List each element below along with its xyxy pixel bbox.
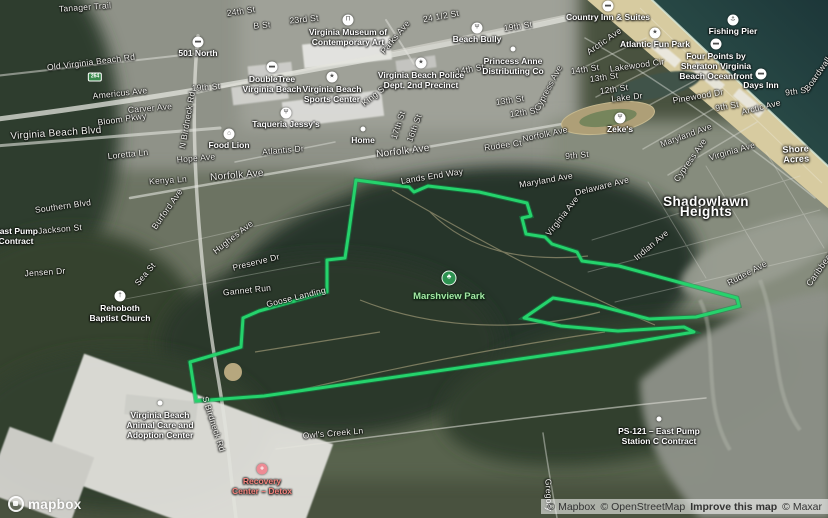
street-label: Parks Ave xyxy=(378,18,412,55)
street-label: Indian Ave xyxy=(632,228,671,263)
dot-icon xyxy=(158,400,163,405)
street-label: 19th St xyxy=(503,19,533,33)
poi-label: Beach Bully xyxy=(453,34,502,44)
highway-shield: 264 xyxy=(88,73,102,82)
street-label: Goose Landing xyxy=(265,285,327,309)
street-label: 24 1/2 St xyxy=(422,8,459,24)
museum-icon: Π xyxy=(343,15,354,26)
street-label: Norfolk Ave xyxy=(521,124,568,143)
dot-icon xyxy=(511,47,516,52)
street-label: Virginia Ave xyxy=(708,140,757,163)
attribution-mapbox-link[interactable]: © Mapbox xyxy=(547,501,595,513)
mapbox-wordmark: mapbox xyxy=(28,497,82,512)
street-label: Cypress Ave xyxy=(671,137,708,184)
park-icon: ♣ xyxy=(442,271,457,286)
poi-label: East Pump Contract xyxy=(0,226,38,246)
street-label: S Birdneck Rd xyxy=(200,395,227,453)
street-label: Lands End Way xyxy=(400,166,464,186)
street-label: Cypress Ave xyxy=(532,63,564,112)
poi-label: Recovery Center – Detox xyxy=(232,476,292,496)
street-label: Rudee Ct xyxy=(484,137,523,152)
attraction-icon: ★ xyxy=(650,27,661,38)
street-label: Virginia Ave xyxy=(543,194,580,238)
street-label: Jackson St xyxy=(38,222,83,236)
poi-label: Zeke's xyxy=(607,124,633,134)
street-label: Preserve Dr xyxy=(231,251,280,272)
poi-label: Fishing Pier xyxy=(709,26,758,36)
street-label: 13th St xyxy=(495,93,525,107)
street-label: 9th St xyxy=(565,149,590,161)
poi-label: DoubleTree Virginia Beach xyxy=(243,74,302,94)
street-label: Arctic Ave xyxy=(585,25,624,56)
street-label: Burford Ave xyxy=(149,187,184,231)
street-label: Old Virginia Beach Rd xyxy=(46,52,135,73)
lodging-icon: ▬ xyxy=(603,0,614,11)
street-label: King St xyxy=(359,82,388,108)
poi-label: 501 North xyxy=(178,48,217,58)
street-label: Delaware Ave xyxy=(574,174,630,197)
street-label: Boardwalk xyxy=(802,53,828,93)
lodging-icon: ▬ xyxy=(711,38,722,49)
street-label: B St xyxy=(253,19,271,30)
street-label: Lakewood Cir xyxy=(609,56,665,74)
lodging-icon: ▬ xyxy=(756,68,767,79)
attribution-maxar-link[interactable]: © Maxar xyxy=(782,501,822,513)
poi-label: Country Inn & Suites xyxy=(566,12,650,22)
medical-icon: + xyxy=(257,464,268,475)
poi-label: Virginia Beach Sports Center xyxy=(303,84,362,104)
street-label: 12th St xyxy=(509,105,539,119)
poi-label: Four Points by Sheraton Virginia Beach O… xyxy=(679,51,752,81)
poi-label: Days Inn xyxy=(743,80,778,90)
poi-label: Rehoboth Baptist Church xyxy=(90,303,151,323)
map-canvas[interactable]: Tanager Trail24th St23rd StB St24 1/2 St… xyxy=(0,0,828,518)
dot-icon xyxy=(657,417,662,422)
street-label: Carver Ave xyxy=(127,101,172,115)
place-label: Shadowlawn Heights xyxy=(645,197,767,217)
street-label: 16th St xyxy=(404,113,423,143)
attribution-bar: © Mapbox © OpenStreetMap Improve this ma… xyxy=(541,499,828,514)
street-label: Lake Dr xyxy=(611,90,643,103)
street-label: Norfolk Ave xyxy=(376,144,431,160)
restaurant-icon: Ψ xyxy=(615,112,626,123)
street-label: N Birdneck Rd xyxy=(177,91,197,150)
poi-label: Princess Anne Distributing Co xyxy=(482,56,543,76)
street-label: 23rd St xyxy=(289,13,319,26)
map-labels-layer: Tanager Trail24th St23rd StB St24 1/2 St… xyxy=(0,0,828,518)
grocery-icon: ⌂ xyxy=(224,128,235,139)
poi-label: Food Lion xyxy=(208,140,249,150)
street-label: Caribbean xyxy=(804,248,828,288)
mapbox-logo-icon xyxy=(8,496,24,512)
mapbox-logo[interactable]: mapbox xyxy=(8,496,82,512)
street-label: Maryland Ave xyxy=(518,170,573,189)
street-label: 19th St xyxy=(191,81,220,93)
street-label: Arctic Ave xyxy=(740,97,781,116)
poi-label: Atlantic Fun Park xyxy=(620,39,690,49)
attribution-osm-link[interactable]: © OpenStreetMap xyxy=(600,501,685,513)
street-label: Jensen Dr xyxy=(24,266,66,279)
lodging-icon: ▬ xyxy=(193,36,204,47)
dot-icon xyxy=(361,126,366,131)
street-label: 17th St xyxy=(389,110,407,140)
street-label: Maryland Ave xyxy=(659,121,714,149)
street-label: 24th St xyxy=(226,4,256,18)
street-label: Southern Blvd xyxy=(34,197,91,215)
street-label: Virginia Beach Blvd xyxy=(10,126,102,142)
police-icon: ★ xyxy=(416,58,427,69)
street-label: Gannet Run xyxy=(222,283,271,298)
street-label: Americus Ave xyxy=(92,85,148,101)
street-label: Tanager Trail xyxy=(59,0,112,14)
improve-this-map-link[interactable]: Improve this map xyxy=(690,501,777,513)
street-label: Kenya Ln xyxy=(149,174,188,187)
poi-label: Virginia Museum of Contemporary Art xyxy=(309,27,387,47)
street-label: 13th St xyxy=(589,70,619,84)
street-label: Hope Ave xyxy=(176,151,215,164)
street-label: Bloom Pkwy xyxy=(97,111,147,128)
street-label: Rudee Ave xyxy=(725,258,768,287)
street-label: Sea St xyxy=(132,260,157,287)
restaurant-icon: Ψ xyxy=(281,107,292,118)
pier-icon: ⚓ xyxy=(728,14,739,25)
poi-label: Home xyxy=(351,135,375,145)
street-label: Hughes Ave xyxy=(211,218,255,256)
poi-label: Virginia Beach Animal Care and Adoption … xyxy=(126,410,193,440)
street-label: 9th St xyxy=(785,84,810,97)
poi-label: Taqueria Jessy's xyxy=(252,119,320,129)
church-icon: † xyxy=(115,291,126,302)
street-label: Atlantis Dr xyxy=(262,143,305,157)
street-label: 12th St xyxy=(599,82,629,96)
poi-label: Virginia Beach Police Dept. 2nd Precinct xyxy=(378,70,464,90)
street-label: 14th St xyxy=(455,62,485,77)
street-label: Owl's Creek Ln xyxy=(302,425,364,440)
park-name-label: Marshview Park xyxy=(413,292,485,302)
street-label: 14th St xyxy=(570,62,600,76)
poi-label: PS-121 – East Pump Station C Contract xyxy=(618,426,700,446)
street-label: Pinewood Dr xyxy=(672,87,724,106)
street-label: 9th St xyxy=(714,99,739,113)
attraction-icon: ★ xyxy=(327,72,338,83)
street-label: Norfolk Ave xyxy=(210,169,264,184)
lodging-icon: ▬ xyxy=(267,62,278,73)
street-label: Loretta Ln xyxy=(107,147,149,161)
restaurant-icon: Ψ xyxy=(472,22,483,33)
place-label: Shore Acres xyxy=(779,143,812,165)
